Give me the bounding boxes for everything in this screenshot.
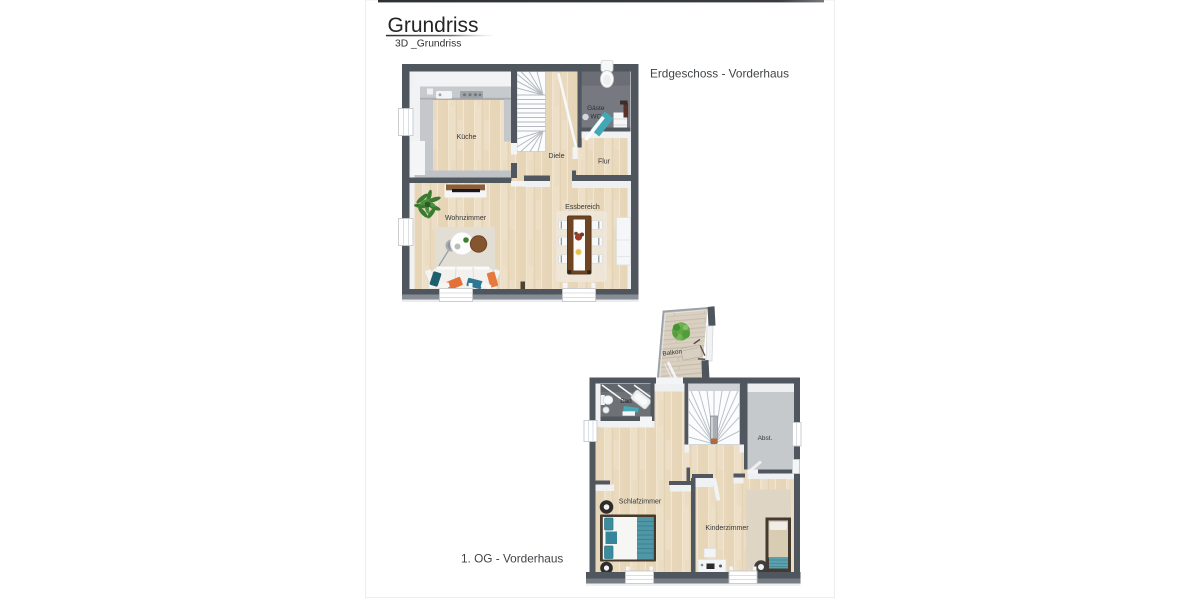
svg-text:Wohnzimmer: Wohnzimmer xyxy=(445,215,487,222)
svg-text:3D _Grundriss: 3D _Grundriss xyxy=(395,39,461,50)
svg-text:1. OG - Vorderhaus: 1. OG - Vorderhaus xyxy=(461,552,563,566)
svg-text:Küche: Küche xyxy=(457,134,477,141)
svg-text:Kinderzimmer: Kinderzimmer xyxy=(705,525,749,532)
svg-text:Grundriss: Grundriss xyxy=(388,14,479,37)
svg-text:Abst.: Abst. xyxy=(758,435,773,442)
svg-text:Erdgeschoss - Vorderhaus: Erdgeschoss - Vorderhaus xyxy=(650,66,789,80)
svg-text:Gäste: Gäste xyxy=(587,105,605,112)
svg-text:Flur: Flur xyxy=(598,159,611,166)
svg-text:Schlafzimmer: Schlafzimmer xyxy=(619,499,662,506)
svg-text:Diele: Diele xyxy=(549,153,565,160)
svg-text:Essbereich: Essbereich xyxy=(565,204,600,211)
svg-text:Bad: Bad xyxy=(620,398,632,405)
